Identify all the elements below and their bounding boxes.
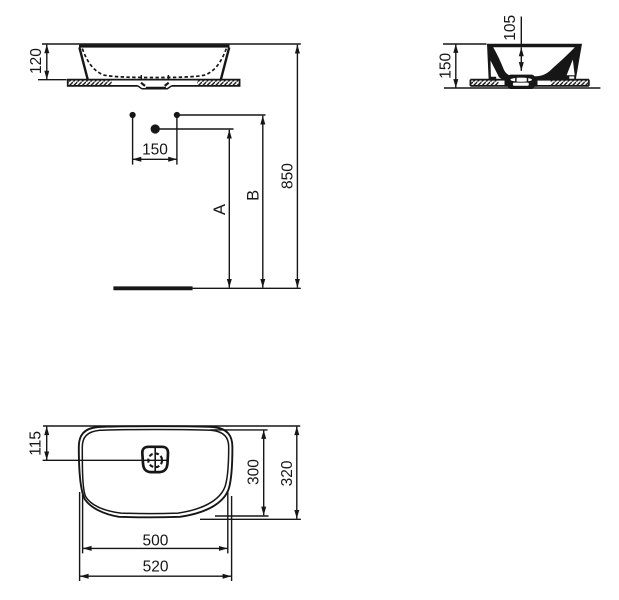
svg-text:850: 850	[280, 163, 297, 189]
svg-text:520: 520	[143, 558, 169, 575]
svg-text:A: A	[211, 204, 229, 215]
svg-text:105: 105	[502, 15, 519, 41]
svg-text:115: 115	[28, 431, 45, 456]
svg-text:320: 320	[279, 460, 296, 486]
svg-text:300: 300	[245, 459, 262, 485]
svg-text:150: 150	[438, 52, 455, 78]
svg-text:500: 500	[142, 532, 168, 549]
svg-text:B: B	[245, 190, 263, 201]
svg-text:150: 150	[142, 142, 168, 159]
svg-text:120: 120	[28, 48, 45, 74]
